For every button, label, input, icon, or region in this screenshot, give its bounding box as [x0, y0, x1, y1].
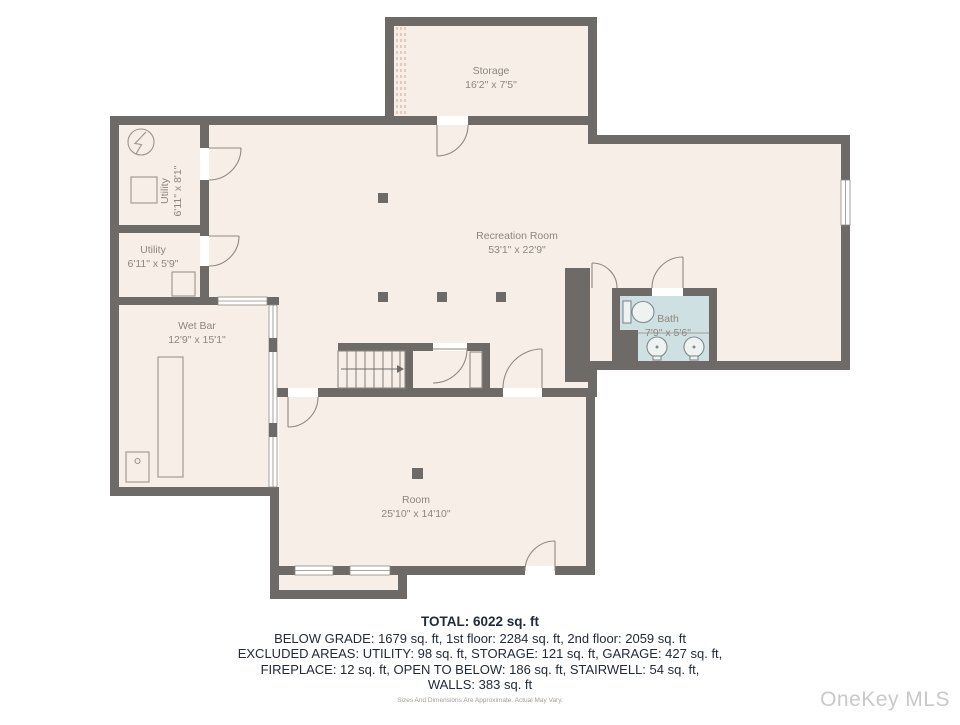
summary-line-2: EXCLUDED AREAS: UTILITY: 98 sq. ft, STOR…: [0, 646, 960, 662]
floor-areas: [119, 26, 841, 590]
wall-room-left: [270, 487, 279, 599]
summary-line-1: BELOW GRADE: 1679 sq. ft, 1st floor: 228…: [0, 631, 960, 647]
wall-east-right: [841, 135, 850, 370]
wall-storage-top: [385, 17, 597, 26]
wall-closet-right: [482, 343, 490, 395]
room-floor: [279, 389, 586, 566]
wall-bath-left-block: [612, 330, 638, 370]
wall-rec-bottom-c: [542, 388, 595, 397]
disclaimer-text: Sizes And Dimensions Are Approximate. Ac…: [0, 697, 960, 704]
wall-utility-right-a: [200, 116, 209, 148]
storage-label: Storage: [473, 65, 510, 77]
summary-line-4: WALLS: 383 sq. ft: [0, 677, 960, 693]
door-gap-closet: [433, 343, 467, 351]
wall-bath-left: [612, 288, 620, 336]
door-gap-bath: [652, 288, 683, 296]
door-gap-storage: [437, 116, 468, 125]
summary-line-3: FIREPLACE: 12 sq. ft, OPEN TO BELOW: 186…: [0, 662, 960, 678]
wall-left: [110, 116, 119, 496]
wall-stair-top: [338, 343, 413, 351]
wall-utility2-bottom: [110, 297, 218, 305]
area-summary: TOTAL: 6022 sq. ft BELOW GRADE: 1679 sq.…: [0, 614, 960, 693]
toilet-tank: [623, 301, 631, 323]
wall-bay-right: [398, 573, 407, 599]
column: [437, 292, 447, 302]
wet-bar-label: Wet Bar: [178, 320, 216, 332]
door-gap-utility1: [200, 148, 209, 180]
wall-storage-bottom-b: [468, 116, 597, 125]
storage-dims: 16'2" x 7'5": [465, 79, 517, 91]
wall-wetbar-bottom: [110, 487, 279, 496]
total-area-line: TOTAL: 6022 sq. ft: [0, 614, 960, 630]
bath-dims: 7'9" x 5'6": [645, 327, 691, 339]
toilet-bowl: [632, 302, 654, 323]
door-gap-room-bottom: [525, 566, 555, 575]
wall-closet-top-a: [413, 343, 433, 351]
wall-stair-divider: [405, 343, 413, 395]
partition-post-mid1: [269, 338, 277, 352]
recreation-room-label: Recreation Room: [476, 230, 558, 242]
utility-upper-label: Utility: [159, 177, 171, 203]
bath-sink-2-drain: [693, 346, 696, 349]
recreation-room-dims: 53'1" x 22'9": [488, 244, 546, 256]
onekey-mls-watermark: OneKey MLS: [820, 688, 950, 712]
wall-utility-divider: [110, 225, 209, 233]
wall-room-right: [586, 389, 595, 575]
utility-lower-label: Utility: [140, 244, 166, 256]
wall-room-bottom-a: [398, 566, 525, 575]
bath-sink-1-tap: [653, 356, 661, 360]
bath-sink-2-tap: [690, 356, 698, 360]
wall-bay-bottom: [270, 590, 407, 599]
bath-label: Bath: [657, 313, 679, 325]
wall-storage-left: [385, 17, 394, 125]
column: [378, 292, 388, 302]
door-gap-rec-room-1: [288, 388, 318, 397]
partition-post-mid2: [269, 423, 277, 437]
room-dims: 25'10" x 14'10": [381, 508, 451, 520]
fireplace-block: [565, 268, 590, 382]
wall-east-top: [588, 135, 850, 144]
wall-top-west: [110, 116, 394, 125]
floor-plan-svg: Storage 16'2" x 7'5" Utility 6'11" x 8'1…: [0, 0, 960, 720]
bath-sink-1-drain: [656, 346, 659, 349]
wall-bath-right: [709, 288, 717, 370]
utility-lower-dims: 6'11" x 5'9": [128, 258, 179, 270]
column: [412, 468, 423, 479]
door-gap-utility2: [200, 236, 209, 266]
utility-upper-dims: 6'11" x 8'1": [172, 165, 184, 216]
column: [378, 193, 388, 203]
door-gap-rec-room-2: [503, 388, 542, 397]
wet-bar-dims: 12'9" x 15'1": [168, 334, 226, 346]
room-label: Room: [402, 494, 430, 506]
column: [496, 292, 506, 302]
